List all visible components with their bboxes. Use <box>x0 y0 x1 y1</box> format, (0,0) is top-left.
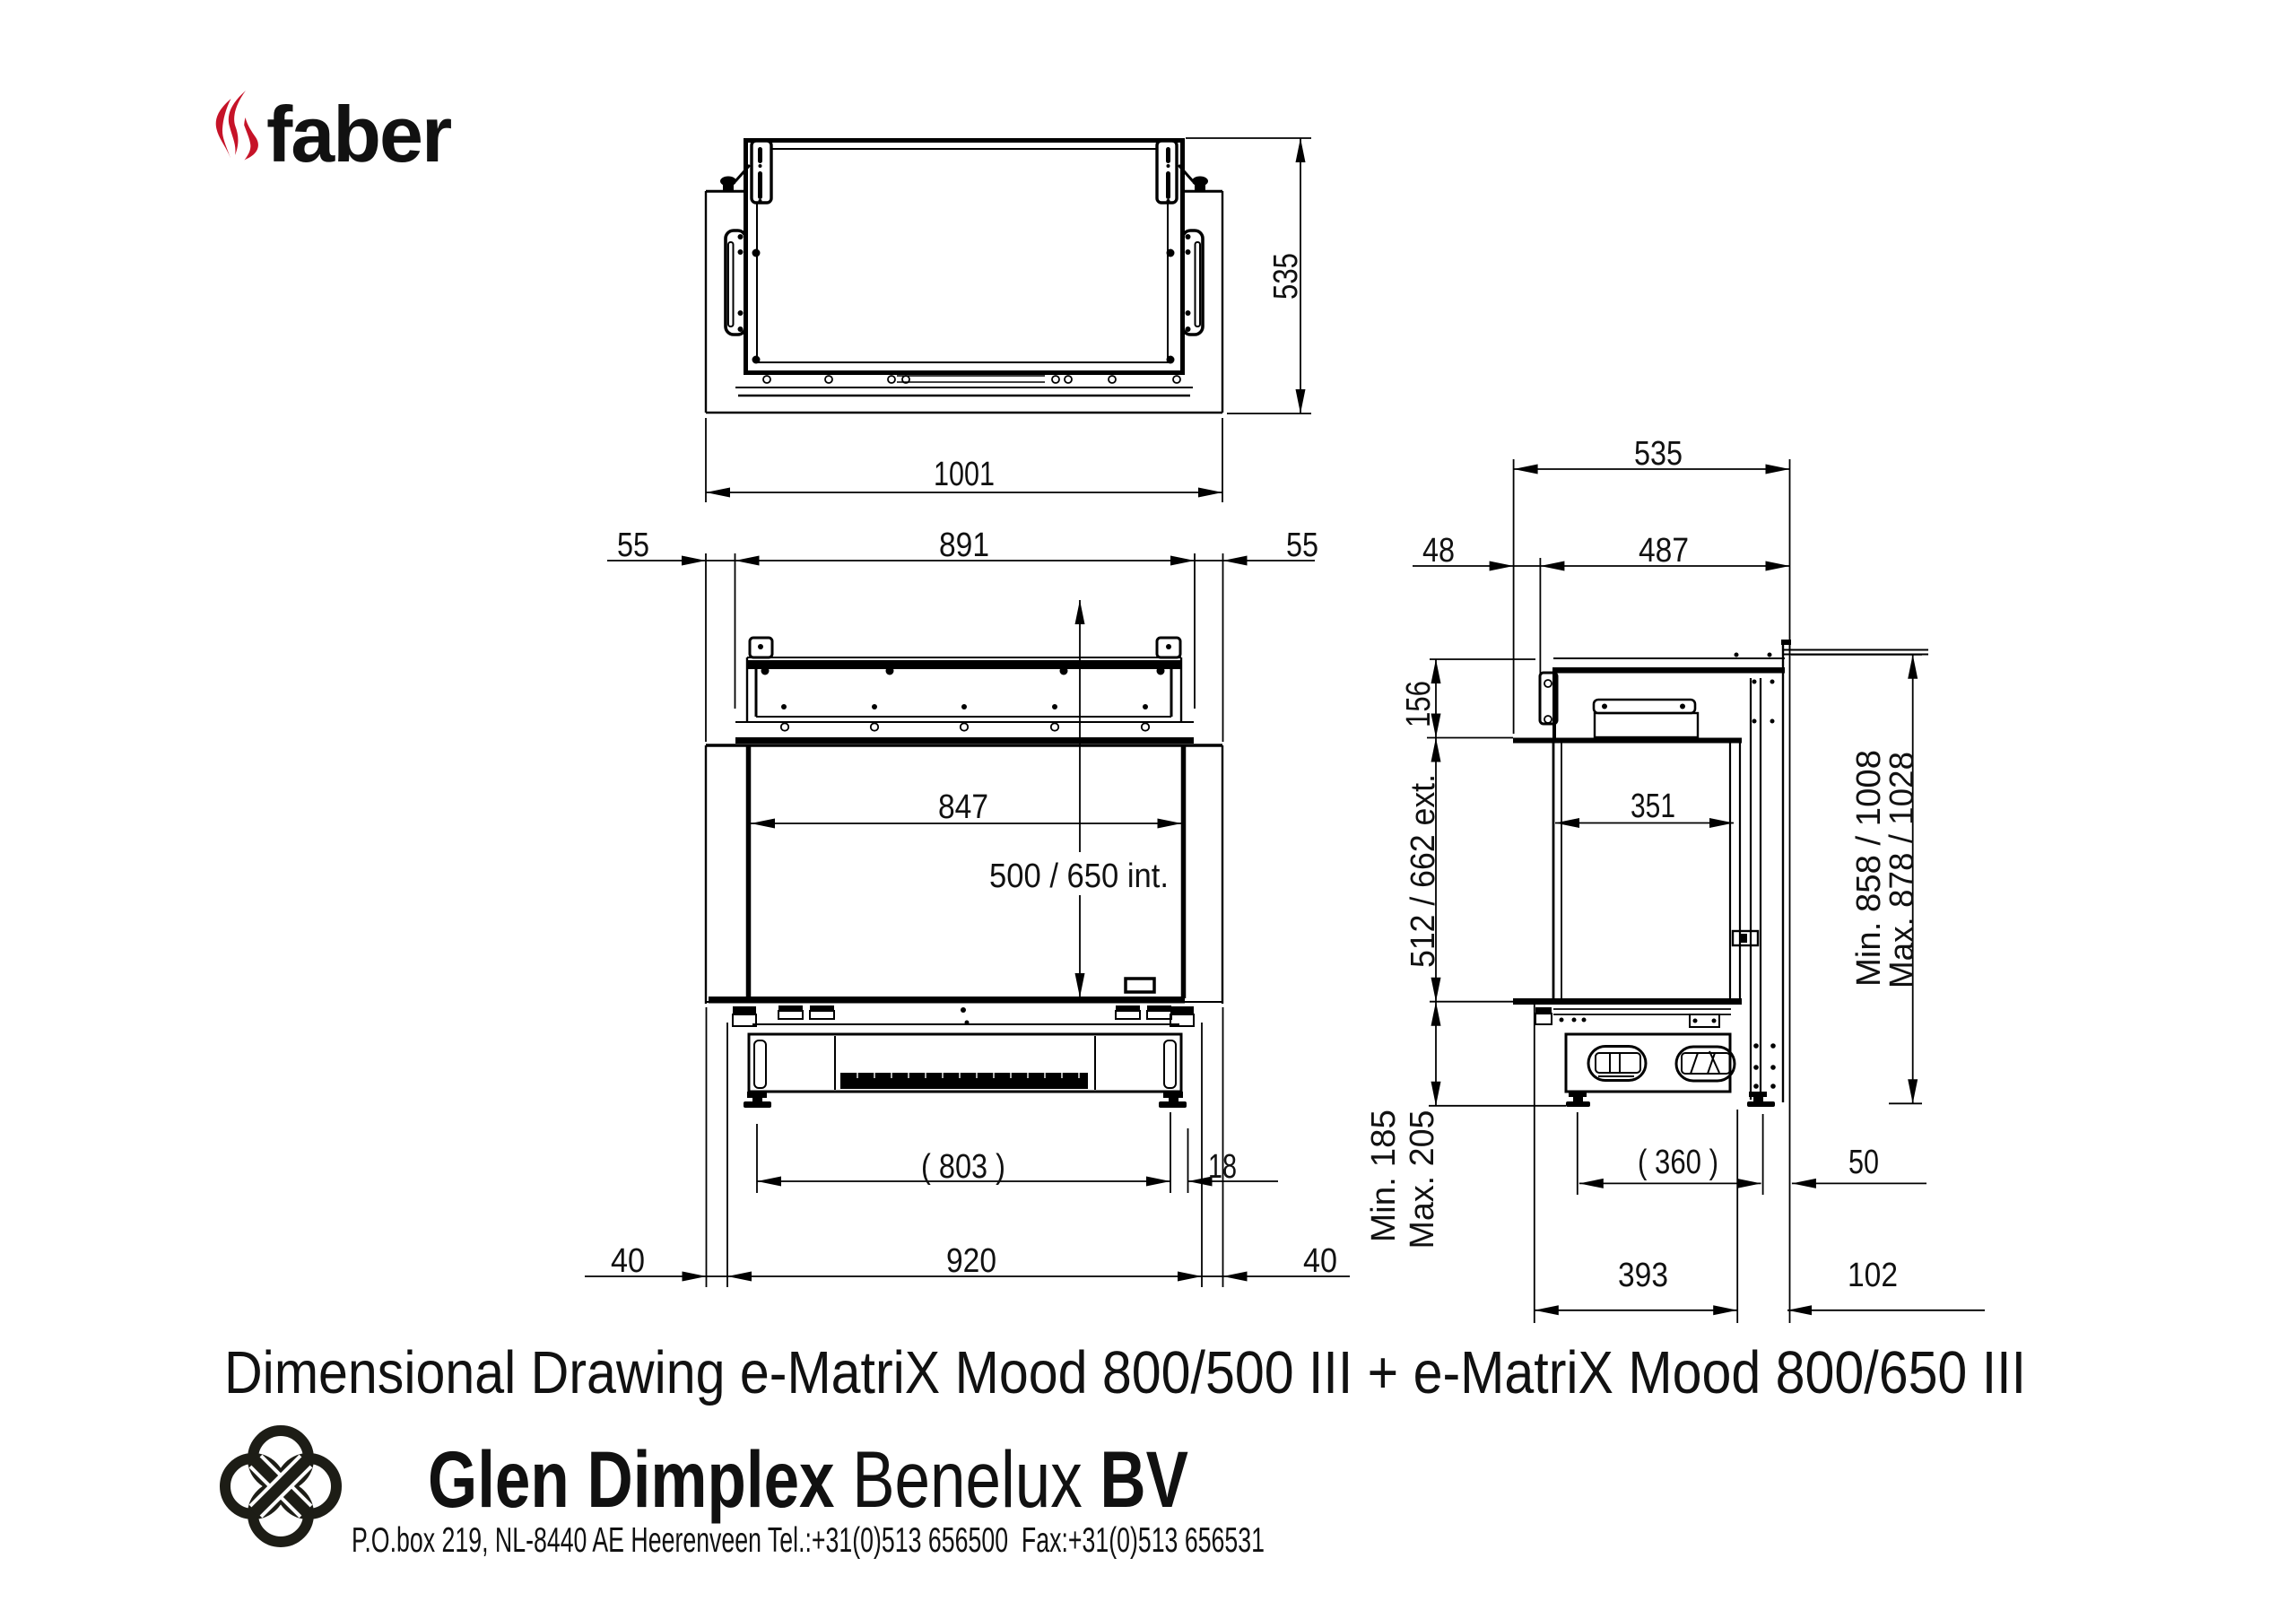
svg-text:Max. 878 / 1028: Max. 878 / 1028 <box>1883 752 1921 988</box>
svg-text:55: 55 <box>617 527 649 564</box>
svg-text:Glen Dimplex Benelux BV: Glen Dimplex Benelux BV <box>428 1434 1188 1524</box>
svg-text:40: 40 <box>611 1242 645 1280</box>
svg-text:Dimensional Drawing e-MatriX M: Dimensional Drawing e-MatriX Mood 800/50… <box>224 1339 2026 1406</box>
svg-text:500 / 650 int.: 500 / 650 int. <box>989 857 1169 895</box>
svg-text:102: 102 <box>1848 1257 1898 1294</box>
svg-text:55: 55 <box>1286 527 1318 564</box>
svg-text:Min. 185: Min. 185 <box>1365 1110 1403 1242</box>
svg-text:48: 48 <box>1422 532 1455 570</box>
svg-text:393: 393 <box>1618 1257 1668 1294</box>
svg-text:535: 535 <box>1634 435 1683 473</box>
svg-text:Max. 205: Max. 205 <box>1404 1110 1441 1249</box>
svg-text:Min. 858 / 1008: Min. 858 / 1008 <box>1850 750 1888 987</box>
svg-text:50: 50 <box>1848 1144 1879 1181</box>
svg-text:487: 487 <box>1639 532 1689 570</box>
svg-text:920: 920 <box>946 1242 996 1280</box>
svg-text:156: 156 <box>1400 681 1438 727</box>
svg-text:535: 535 <box>1267 253 1305 300</box>
svg-text:( 360 ): ( 360 ) <box>1638 1144 1718 1181</box>
svg-text:P.O.box 219, NL-8440 AE Heeren: P.O.box 219, NL-8440 AE Heerenveen Tel.:… <box>352 1521 1265 1560</box>
svg-text:351: 351 <box>1631 788 1675 825</box>
svg-text:847: 847 <box>938 788 988 826</box>
svg-text:512 / 662 ext.: 512 / 662 ext. <box>1405 774 1442 968</box>
svg-text:( 803 ): ( 803 ) <box>921 1148 1005 1186</box>
svg-text:40: 40 <box>1303 1242 1337 1280</box>
svg-text:faber: faber <box>266 90 451 178</box>
svg-text:1001: 1001 <box>934 456 995 493</box>
svg-text:891: 891 <box>939 527 989 564</box>
